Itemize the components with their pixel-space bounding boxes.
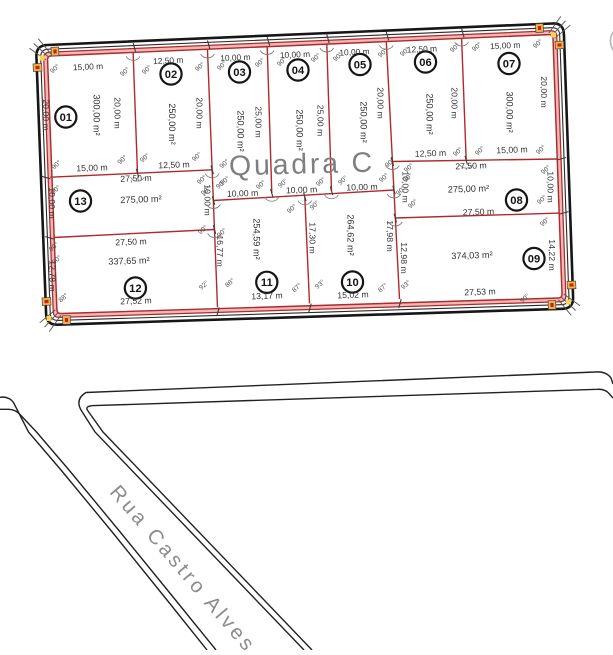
svg-text:05: 05: [354, 59, 366, 71]
svg-text:17,98 m: 17,98 m: [385, 220, 395, 251]
svg-text:06: 06: [419, 57, 431, 69]
svg-text:27,52 m: 27,52 m: [120, 295, 152, 306]
svg-text:15,00 m: 15,00 m: [76, 162, 108, 173]
svg-text:01: 01: [60, 112, 72, 124]
svg-text:15,00 m: 15,00 m: [496, 144, 528, 155]
svg-text:12,50 m: 12,50 m: [158, 159, 190, 170]
svg-text:20,00 m: 20,00 m: [376, 87, 386, 118]
svg-text:250,00 m²: 250,00 m²: [236, 110, 246, 151]
svg-text:12: 12: [129, 283, 141, 295]
svg-text:03: 03: [233, 67, 245, 79]
svg-text:20,00 m: 20,00 m: [41, 99, 51, 130]
svg-text:20,00 m: 20,00 m: [450, 87, 460, 118]
svg-text:10,00 m: 10,00 m: [546, 171, 556, 202]
svg-text:10,00 m: 10,00 m: [346, 181, 378, 192]
svg-text:17,30 m: 17,30 m: [308, 222, 318, 253]
svg-text:16,77 m: 16,77 m: [215, 235, 225, 266]
svg-text:10,00 m: 10,00 m: [227, 188, 259, 199]
svg-text:10,00 m: 10,00 m: [286, 184, 318, 195]
svg-text:08: 08: [510, 195, 522, 207]
svg-text:264,62 m²: 264,62 m²: [346, 214, 356, 255]
svg-text:27,50 m: 27,50 m: [455, 160, 487, 171]
svg-text:20,00 m: 20,00 m: [539, 76, 549, 107]
svg-text:04: 04: [292, 65, 305, 77]
svg-text:337,65 m²: 337,65 m²: [108, 255, 150, 266]
svg-text:15,00 m: 15,00 m: [73, 61, 104, 72]
svg-text:13,17 m: 13,17 m: [251, 290, 283, 301]
svg-text:300,00 m²: 300,00 m²: [505, 91, 515, 132]
svg-text:12,50 m: 12,50 m: [407, 43, 438, 54]
svg-text:300,00 m²: 300,00 m²: [92, 94, 102, 135]
svg-text:15,00 m: 15,00 m: [490, 40, 521, 51]
svg-text:20,00 m: 20,00 m: [113, 97, 123, 128]
svg-text:25,00 m: 25,00 m: [254, 106, 264, 137]
svg-text:275,00 m²: 275,00 m²: [120, 194, 162, 205]
svg-text:374,03 m²: 374,03 m²: [451, 250, 493, 261]
svg-text:250,00 m²: 250,00 m²: [425, 93, 435, 134]
svg-text:254,59 m²: 254,59 m²: [252, 218, 262, 259]
svg-text:02: 02: [165, 69, 177, 81]
svg-text:11: 11: [261, 277, 273, 289]
svg-text:07: 07: [503, 58, 515, 70]
svg-text:27,50 m: 27,50 m: [115, 236, 147, 247]
svg-text:250,00 m²: 250,00 m²: [295, 109, 305, 150]
svg-text:250,00 m²: 250,00 m²: [167, 103, 177, 144]
svg-text:12,50 m: 12,50 m: [153, 55, 184, 66]
svg-text:09: 09: [528, 253, 540, 265]
svg-text:12,50 m: 12,50 m: [415, 148, 447, 159]
svg-text:10: 10: [346, 277, 358, 289]
svg-text:27,50 m: 27,50 m: [120, 173, 152, 184]
svg-text:25,00 m: 25,00 m: [316, 105, 326, 136]
svg-text:27,53 m: 27,53 m: [464, 286, 496, 297]
svg-text:275,00 m²: 275,00 m²: [448, 183, 490, 194]
svg-text:15,02 m: 15,02 m: [337, 289, 369, 300]
svg-text:250,00 m²: 250,00 m²: [359, 101, 369, 142]
svg-text:13: 13: [74, 196, 86, 208]
svg-text:14,22 m: 14,22 m: [547, 239, 557, 270]
svg-text:12,98 m: 12,98 m: [399, 242, 409, 273]
svg-text:Quadra C: Quadra C: [229, 147, 376, 183]
svg-text:27,50 m: 27,50 m: [463, 206, 495, 217]
svg-text:20,00 m: 20,00 m: [195, 97, 205, 128]
